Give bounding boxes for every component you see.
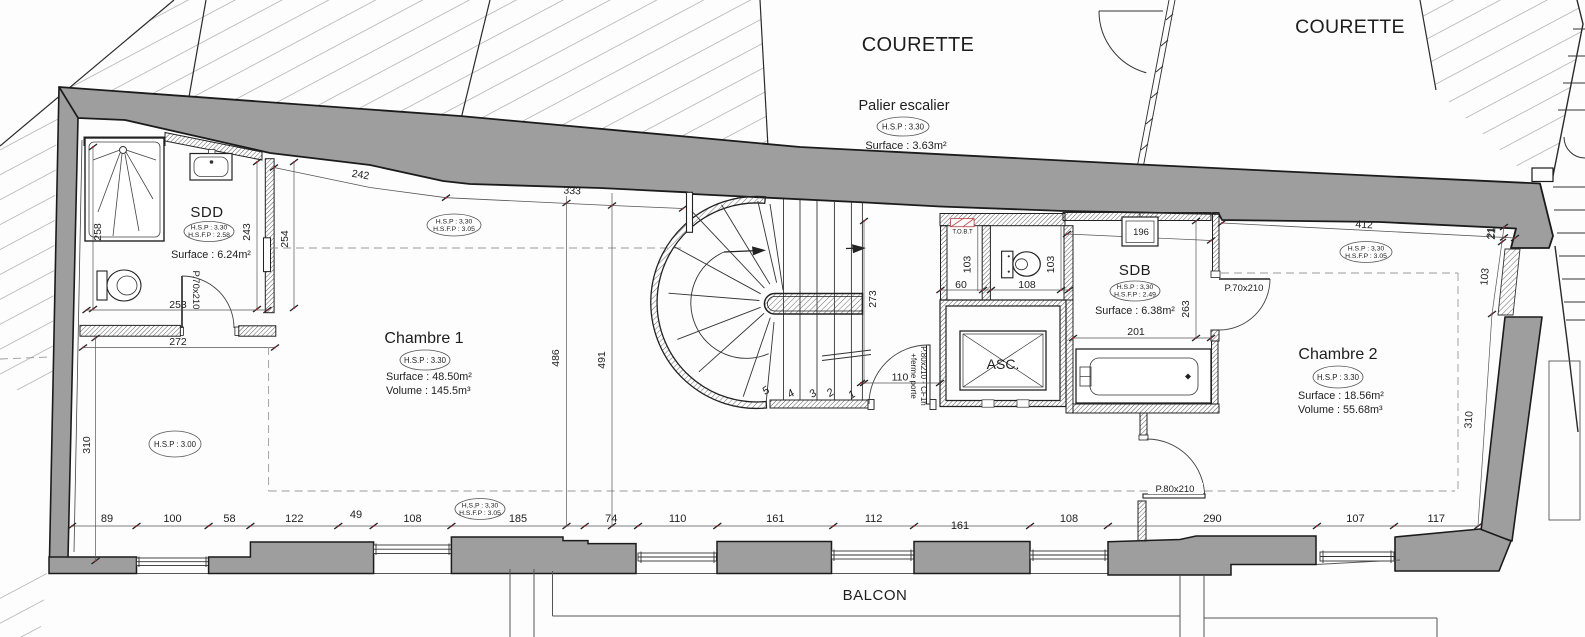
svg-text:486: 486: [550, 349, 562, 367]
svg-text:263: 263: [1180, 300, 1192, 318]
svg-text:H.S.F.P : 2.58: H.S.F.P : 2.58: [188, 232, 230, 239]
svg-text:Surface : 48.50m²: Surface : 48.50m²: [386, 371, 472, 383]
svg-text:COURETTE: COURETTE: [1295, 16, 1405, 38]
svg-text:412: 412: [1355, 219, 1373, 232]
svg-text:89: 89: [101, 513, 113, 525]
svg-text:333: 333: [563, 185, 581, 198]
svg-text:H.S.P : 3,30: H.S.P : 3,30: [436, 219, 473, 226]
svg-text:P.70x210: P.70x210: [1225, 283, 1264, 294]
svg-text:Surface : 6.38m²: Surface : 6.38m²: [1095, 305, 1175, 317]
svg-text:H.S.P : 3.00: H.S.P : 3.00: [154, 440, 197, 449]
svg-text:107: 107: [1346, 513, 1364, 525]
svg-text:H.S.F.P : 3.05: H.S.F.P : 3.05: [1345, 253, 1387, 260]
svg-text:ASC.: ASC.: [987, 356, 1020, 372]
svg-text:P.70x210: P.70x210: [190, 271, 201, 310]
svg-text:108: 108: [403, 513, 421, 525]
svg-text:243: 243: [241, 223, 253, 241]
svg-text:T.O.B.T: T.O.B.T: [952, 230, 973, 236]
svg-text:161: 161: [766, 513, 784, 525]
svg-text:58: 58: [223, 513, 235, 525]
svg-text:SDB: SDB: [1119, 262, 1151, 279]
svg-text:290: 290: [1203, 513, 1221, 525]
svg-text:Volume : 55.68m³: Volume : 55.68m³: [1298, 404, 1383, 416]
svg-text:491: 491: [596, 351, 608, 369]
svg-text:254: 254: [279, 230, 291, 248]
svg-text:H.S.F.P : 3.05: H.S.F.P : 3.05: [433, 226, 475, 233]
svg-text:H.S.P : 3,30: H.S.P : 3,30: [1117, 284, 1154, 291]
svg-text:COURETTE: COURETTE: [862, 34, 974, 56]
svg-text:Surface : 3.63m²: Surface : 3.63m²: [865, 140, 947, 152]
svg-text:Surface : 6.24m²: Surface : 6.24m²: [171, 249, 251, 261]
svg-text:H.S.P : 3.30: H.S.P : 3.30: [1317, 373, 1360, 382]
svg-text:21: 21: [1486, 228, 1499, 240]
svg-text:SDD: SDD: [190, 204, 223, 221]
svg-text:Volume : 145.5m³: Volume : 145.5m³: [386, 385, 471, 397]
svg-text:74: 74: [605, 513, 617, 525]
svg-text:273: 273: [867, 290, 879, 308]
svg-text:185: 185: [509, 513, 527, 525]
svg-text:49: 49: [350, 509, 362, 521]
svg-text:60: 60: [955, 279, 967, 291]
svg-text:H.S.F.P : 2.49: H.S.F.P : 2.49: [1114, 292, 1156, 299]
svg-text:+ferme porte: +ferme porte: [909, 353, 918, 399]
svg-text:258: 258: [92, 223, 104, 241]
svg-text:108: 108: [1060, 513, 1078, 525]
svg-text:100: 100: [163, 513, 181, 525]
svg-text:BALCON: BALCON: [843, 587, 908, 604]
svg-text:H.S.P : 3.30: H.S.P : 3.30: [404, 356, 447, 365]
svg-text:H.S.P : 3,30: H.S.P : 3,30: [1348, 246, 1385, 253]
svg-text:H.S.F.P : 3.05: H.S.F.P : 3.05: [459, 510, 501, 517]
svg-text:Chambre 1: Chambre 1: [384, 330, 463, 347]
svg-text:H.S.P : 3.30: H.S.P : 3.30: [882, 123, 925, 132]
svg-text:196: 196: [1133, 227, 1149, 238]
svg-text:103: 103: [1045, 256, 1057, 274]
svg-text:Surface : 18.56m²: Surface : 18.56m²: [1298, 390, 1384, 402]
svg-text:253: 253: [169, 299, 187, 311]
svg-text:117: 117: [1428, 513, 1446, 525]
svg-text:103: 103: [962, 256, 974, 274]
svg-text:112: 112: [865, 513, 883, 525]
svg-text:310: 310: [1462, 410, 1475, 428]
svg-text:Chambre 2: Chambre 2: [1298, 346, 1377, 363]
svg-text:161: 161: [951, 520, 969, 532]
svg-text:Palier escalier: Palier escalier: [858, 98, 949, 114]
svg-text:103: 103: [1478, 267, 1491, 286]
svg-text:108: 108: [1018, 279, 1036, 291]
svg-text:110: 110: [669, 513, 687, 525]
svg-text:P.80x210: P.80x210: [1156, 484, 1195, 495]
svg-text:P.80x210 - CF1h: P.80x210 - CF1h: [919, 346, 928, 405]
svg-text:310: 310: [81, 436, 93, 454]
svg-text:H.S.P : 3.30: H.S.P : 3.30: [191, 225, 228, 232]
svg-text:H,S,P : 3,30: H,S,P : 3,30: [462, 503, 499, 510]
svg-text:122: 122: [285, 513, 303, 525]
svg-text:272: 272: [169, 336, 187, 348]
svg-text:201: 201: [1127, 326, 1145, 338]
svg-text:110: 110: [892, 372, 909, 384]
